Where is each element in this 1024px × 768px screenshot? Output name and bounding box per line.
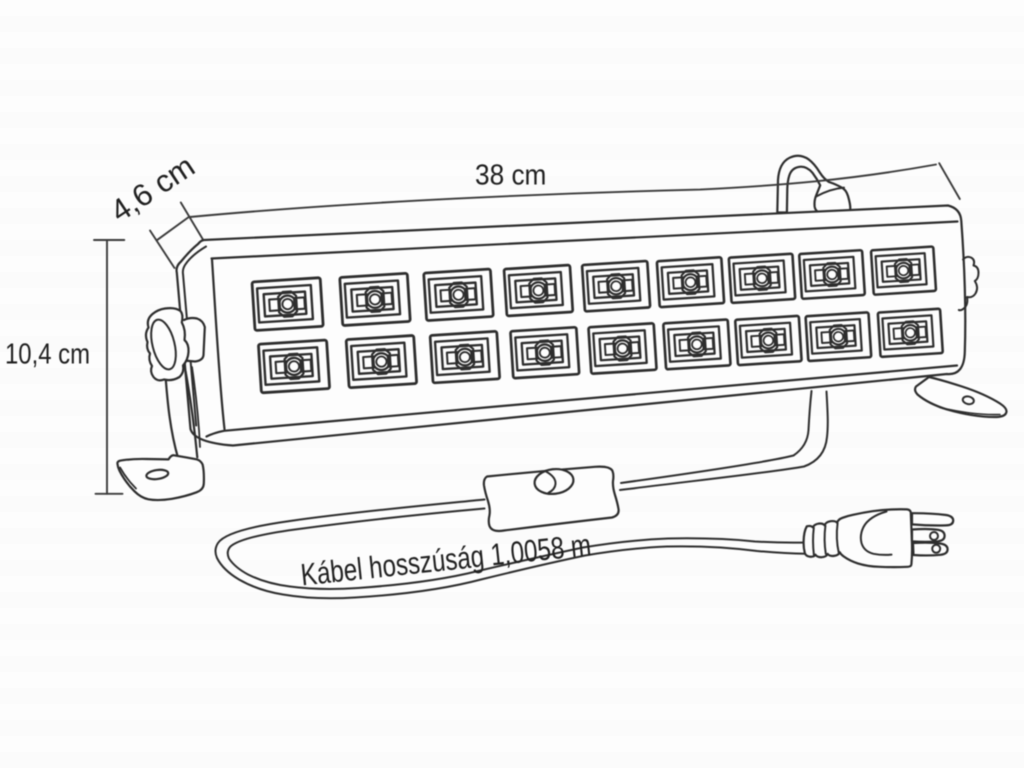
svg-text:10,4 cm: 10,4 cm <box>5 337 90 370</box>
svg-text:4,6 cm: 4,6 cm <box>104 148 201 229</box>
svg-text:38 cm: 38 cm <box>475 158 546 190</box>
svg-text:Kábel hosszúság 1,0058 m: Kábel hosszúság 1,0058 m <box>299 527 593 592</box>
